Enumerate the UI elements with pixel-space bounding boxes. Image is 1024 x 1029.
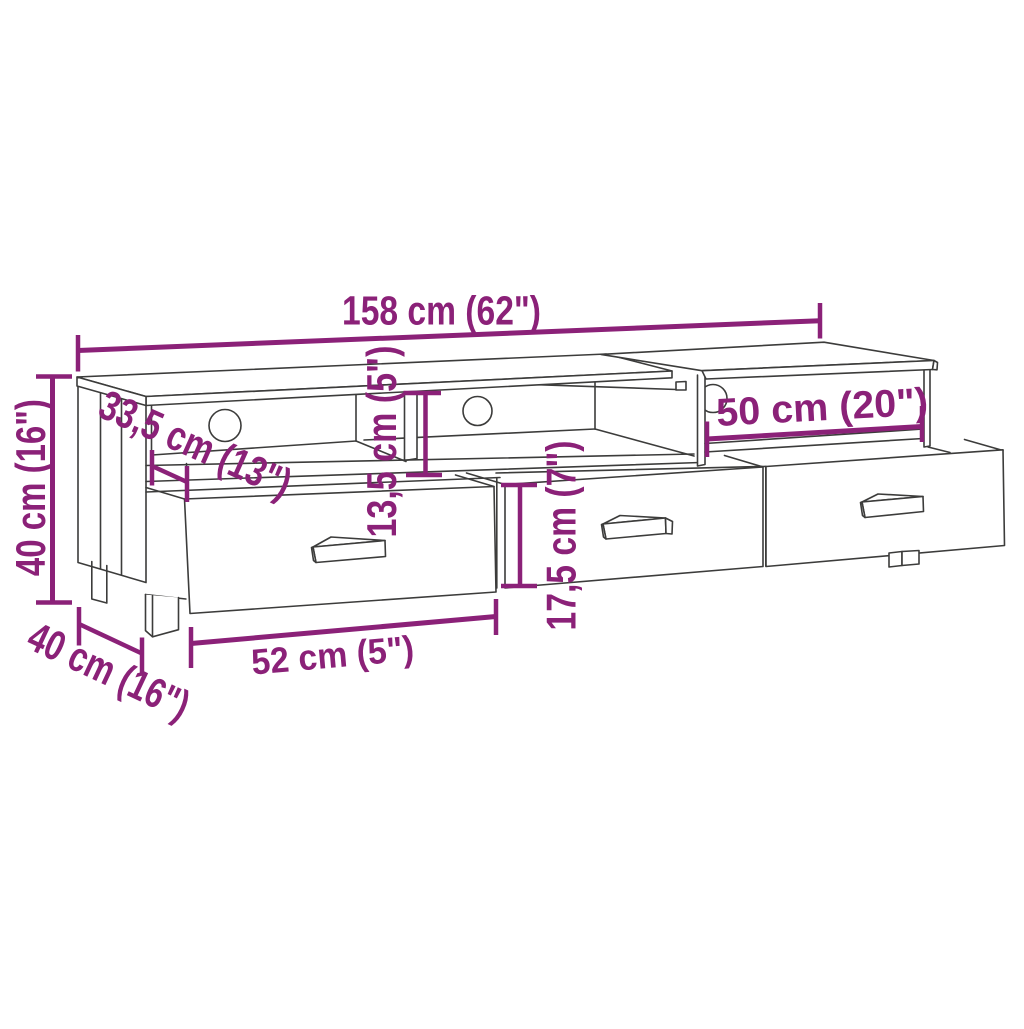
svg-text:158 cm (62"): 158 cm (62") (342, 288, 541, 334)
svg-text:17,5 cm (7"): 17,5 cm (7") (538, 441, 585, 631)
svg-text:40 cm (16"): 40 cm (16") (7, 399, 54, 576)
svg-text:13,5 cm (5"): 13,5 cm (5") (358, 346, 405, 538)
